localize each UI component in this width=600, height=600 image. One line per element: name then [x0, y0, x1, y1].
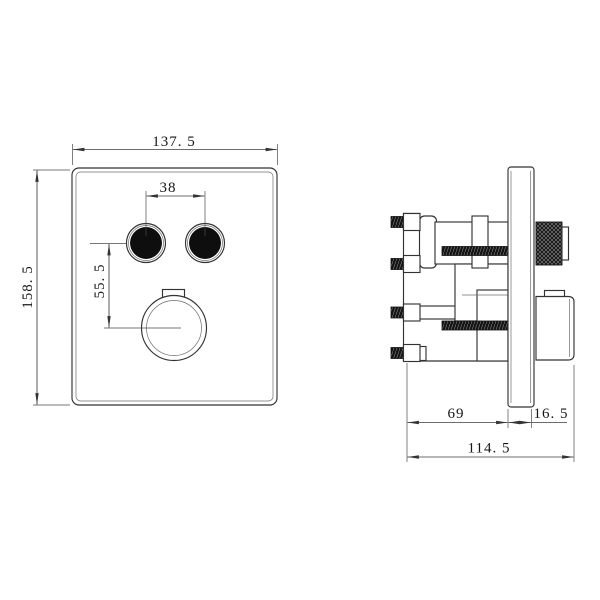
dim-label-total-depth: 114. 5 — [468, 441, 511, 457]
dim-body-depth: 69 — [408, 406, 508, 423]
drawing-canvas: 137. 5 158. 5 38 — [0, 0, 600, 600]
mounting-rod-lower — [442, 321, 508, 330]
knurled-button-side — [536, 222, 569, 265]
dim-label-button-spacing: 38 — [160, 180, 177, 196]
inlet-stub-1 — [391, 214, 420, 231]
dim-label-body-depth: 69 — [448, 406, 465, 422]
dim-front-width: 137. 5 — [73, 134, 278, 165]
inlet-stub-4 — [391, 345, 420, 362]
dim-side-depths: 69 16. 5 114. 5 — [407, 363, 574, 462]
inlet-stub-2 — [391, 256, 420, 273]
side-view: 69 16. 5 114. 5 — [391, 167, 574, 462]
knurled-button-cap — [562, 227, 569, 260]
cartridge-housing — [420, 216, 437, 268]
front-view: 137. 5 158. 5 38 — [20, 134, 278, 405]
handle-knob-side — [536, 291, 574, 361]
dim-label-knob-offset: 55. 5 — [92, 264, 108, 299]
mounting-rod-upper — [442, 247, 508, 256]
inlet-stubs — [391, 214, 420, 362]
dim-label-plate-section: 16. 5 — [534, 406, 569, 422]
valve-body — [404, 214, 509, 362]
dim-total-depth: 114. 5 — [408, 441, 574, 458]
valve-dimension-drawing: 137. 5 158. 5 38 — [0, 0, 600, 600]
dim-front-height: 158. 5 — [20, 170, 70, 405]
wall-plate-side — [508, 167, 534, 407]
mounting-nut — [472, 216, 488, 268]
inlet-stub-3 — [391, 304, 420, 321]
body-back-flange — [404, 214, 421, 362]
body-neck-upper — [420, 306, 456, 319]
dim-plate-section: 16. 5 — [509, 406, 569, 423]
dim-label-plate-height: 158. 5 — [20, 265, 36, 309]
dim-label-plate-width: 137. 5 — [152, 134, 196, 150]
